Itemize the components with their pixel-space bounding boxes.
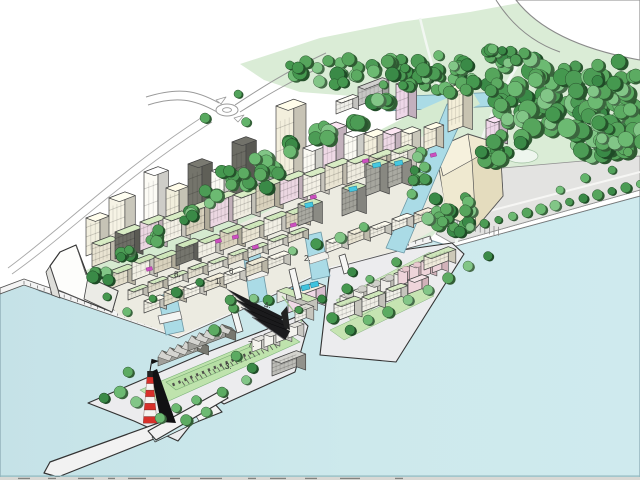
svg-text:4.: 4.: [264, 301, 271, 310]
svg-text:7.: 7.: [248, 340, 255, 349]
svg-text:1.: 1.: [215, 277, 222, 286]
svg-text:6.: 6.: [229, 267, 236, 276]
svg-text:2.: 2.: [304, 254, 311, 263]
svg-text:3.: 3.: [225, 362, 232, 371]
svg-text:8.: 8.: [174, 270, 181, 279]
